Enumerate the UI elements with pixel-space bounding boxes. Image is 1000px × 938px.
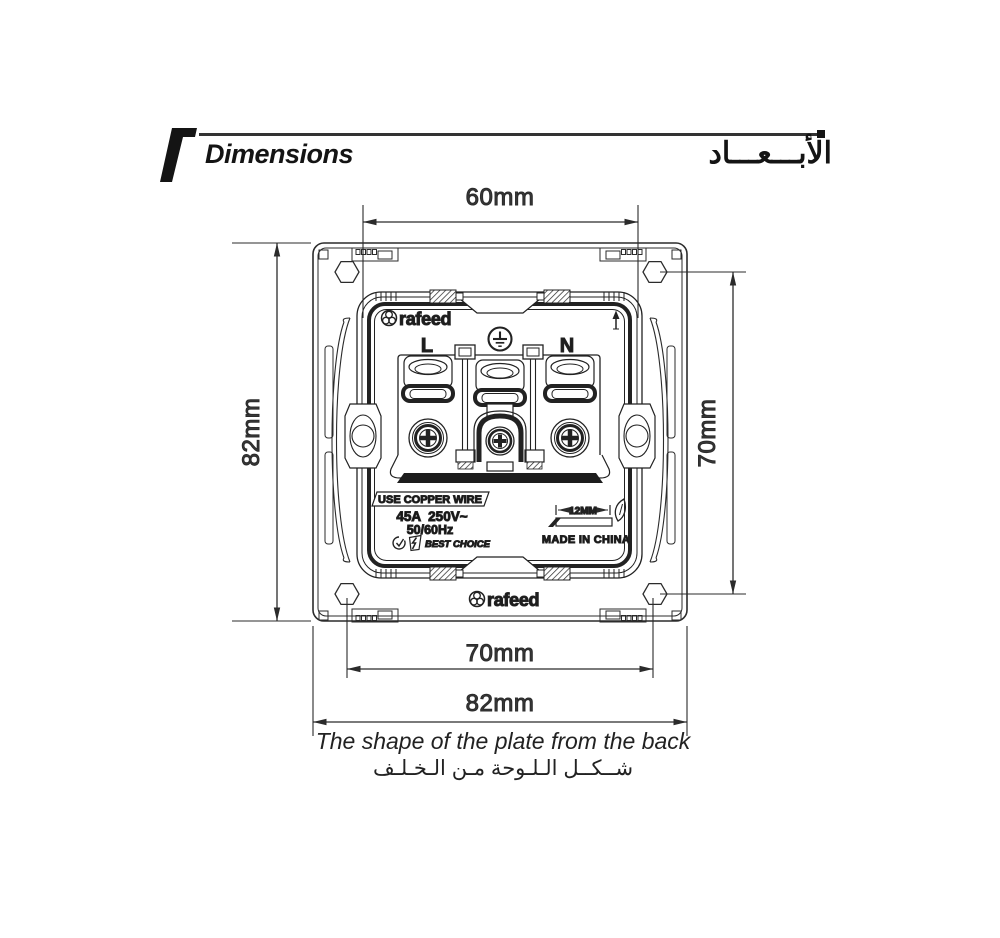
wire-port xyxy=(475,360,525,405)
screw-icon xyxy=(551,419,589,457)
page: Dimensions الأبـــعـــاد xyxy=(0,0,1000,938)
terminal-label-live: L xyxy=(421,335,433,357)
dim-left-82: 82mm xyxy=(232,243,311,621)
technical-drawing: rafeed L N xyxy=(0,0,1000,938)
terminal-label-neutral: N xyxy=(560,335,574,357)
mechanism: rafeed L N xyxy=(345,290,655,580)
screw-icon xyxy=(486,427,514,455)
strip-gauge-label: 12MM xyxy=(569,506,597,517)
spec-frequency: 50/60Hz xyxy=(407,523,454,537)
dimension-label: 70mm xyxy=(466,640,535,667)
dimension-label: 70mm xyxy=(694,399,721,468)
divider-band xyxy=(397,473,603,483)
best-choice-text: BEST CHOICE xyxy=(425,539,491,550)
mounting-oval xyxy=(619,404,655,468)
wire-port xyxy=(403,356,453,401)
dimension-label: 60mm xyxy=(466,184,535,211)
dimension-label: 82mm xyxy=(466,690,535,717)
dimension-label: 82mm xyxy=(238,398,265,467)
wire-port xyxy=(545,356,595,401)
caption-ar: شــكــل الـلـوحة مـن الـخـلـف xyxy=(0,756,1000,781)
spec-warning-text: USE COPPER WIRE xyxy=(378,494,482,506)
spec-rating: 45A 250V~ xyxy=(396,509,467,524)
mounting-oval xyxy=(345,404,381,468)
terminal-block xyxy=(390,345,609,483)
rafeed-logo-text: rafeed xyxy=(399,309,451,329)
screw-icon xyxy=(409,419,447,457)
caption-en: The shape of the plate from the back xyxy=(0,728,1000,755)
plate-brand-text: rafeed xyxy=(487,590,539,610)
made-in-text: MADE IN CHINA xyxy=(542,534,630,546)
